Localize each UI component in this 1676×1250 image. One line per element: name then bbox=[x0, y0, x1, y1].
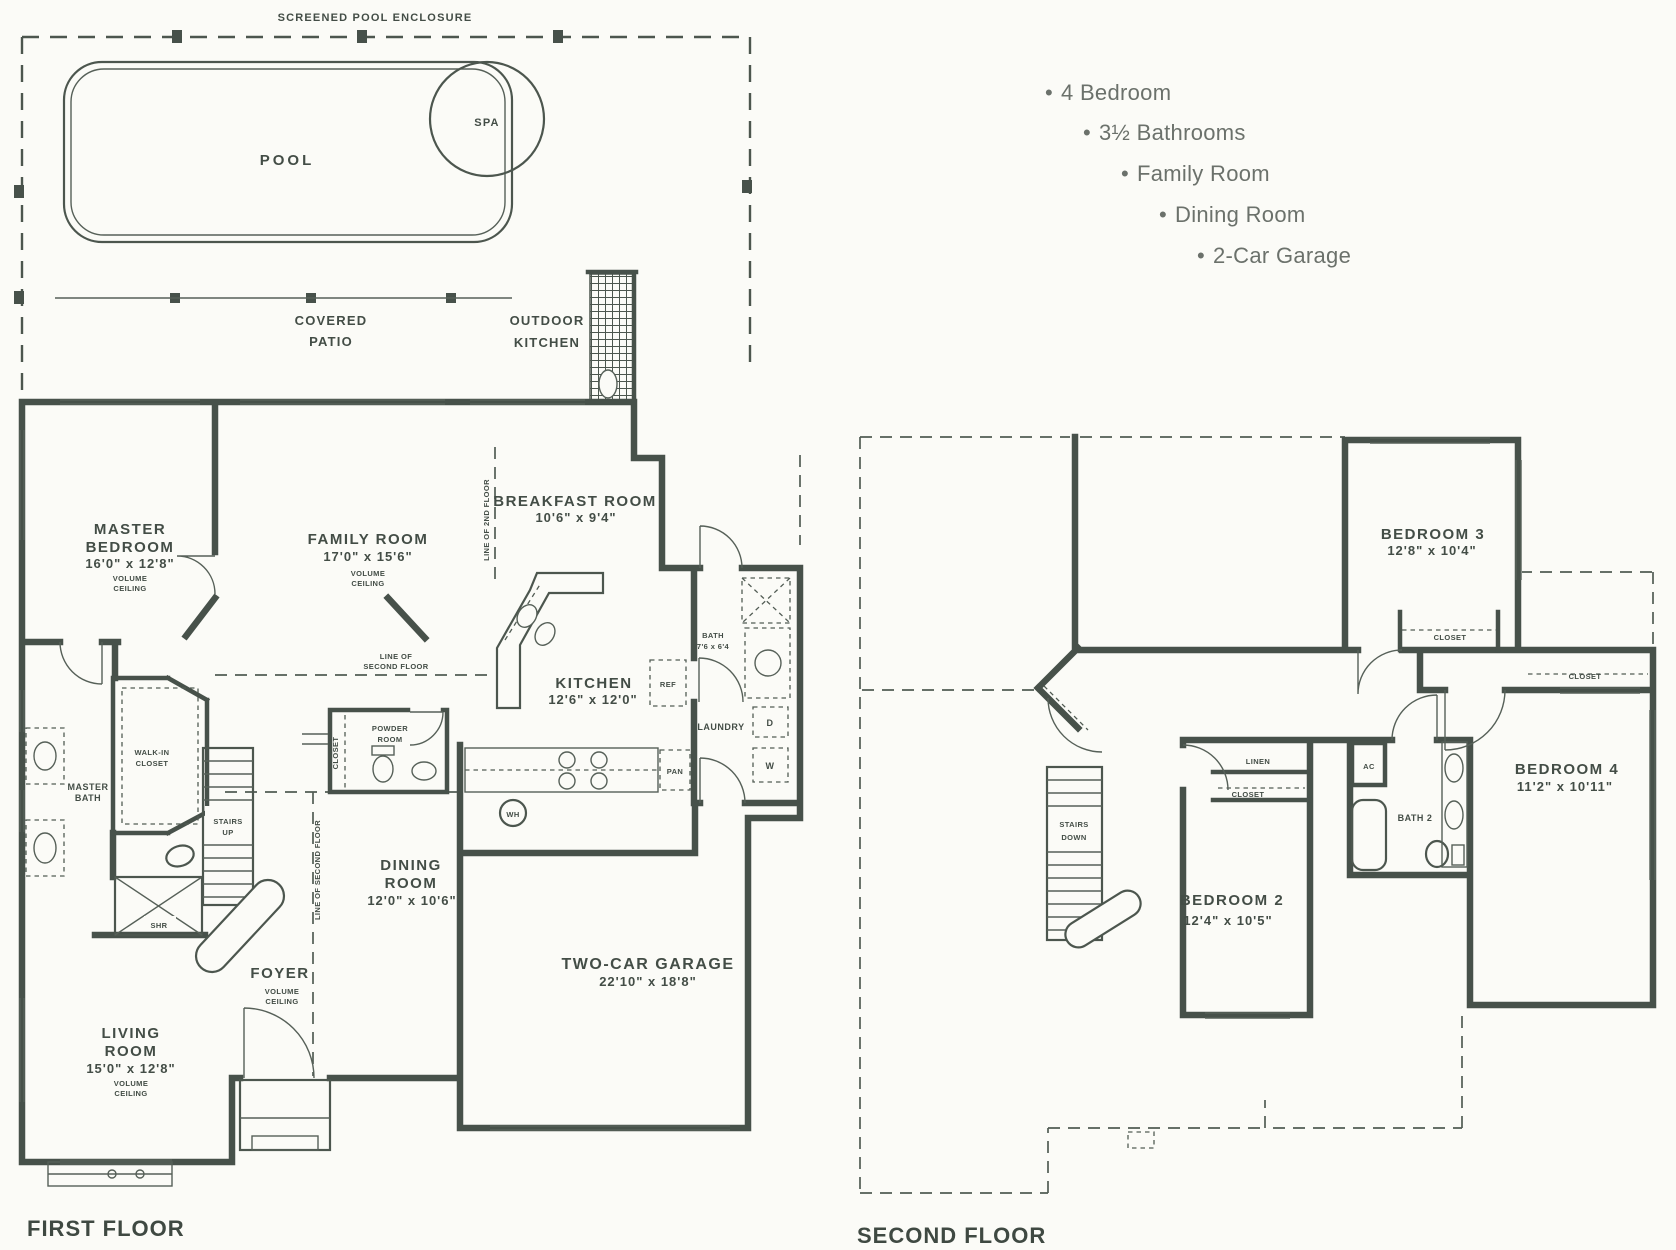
svg-text:CEILING: CEILING bbox=[114, 1089, 147, 1098]
svg-text:BATH: BATH bbox=[75, 793, 101, 803]
svg-text:MASTER: MASTER bbox=[68, 782, 109, 792]
pool-label: POOL bbox=[260, 152, 315, 169]
second-floor-plan bbox=[860, 437, 1656, 1193]
master-bath-fixtures bbox=[26, 642, 102, 876]
svg-text:ROOM: ROOM bbox=[385, 875, 438, 892]
second-floor-window-gaps bbox=[1203, 437, 1656, 1019]
svg-text:16'0" x 12'8": 16'0" x 12'8" bbox=[85, 556, 174, 571]
svg-text:BATH: BATH bbox=[702, 631, 724, 640]
garage-label: TWO-CAR GARAGE 22'10" x 18'8" bbox=[562, 956, 735, 989]
floorplan-page: SCREENED POOL ENCLOSURE POOL SPA COVERED… bbox=[0, 0, 1676, 1250]
shr-label: SHR bbox=[150, 921, 167, 930]
pan-label: PAN bbox=[667, 767, 683, 776]
front-entry bbox=[240, 1008, 330, 1150]
stair-banister bbox=[189, 873, 290, 978]
svg-text:12'0" x 10'6": 12'0" x 10'6" bbox=[367, 893, 456, 908]
covered-patio-label: COVERED PATIO bbox=[295, 313, 368, 349]
svg-text:DOWN: DOWN bbox=[1061, 833, 1086, 842]
feature-item: •Family Room bbox=[1121, 161, 1270, 186]
first-bath-fixtures bbox=[699, 578, 790, 702]
svg-text:BEDROOM 2: BEDROOM 2 bbox=[1180, 892, 1284, 909]
second-floor-walls bbox=[1038, 437, 1653, 1015]
svg-text:FAMILY ROOM: FAMILY ROOM bbox=[308, 531, 429, 548]
svg-text:CEILING: CEILING bbox=[265, 997, 298, 1006]
svg-text:SECOND FLOOR: SECOND FLOOR bbox=[363, 662, 428, 671]
laundry-label: LAUNDRY bbox=[697, 722, 744, 732]
svg-text:FOYER: FOYER bbox=[250, 965, 309, 982]
kitchen-label: KITCHEN 12'6" x 12'0" bbox=[548, 675, 637, 707]
svg-text:TWO-CAR GARAGE: TWO-CAR GARAGE bbox=[562, 956, 735, 973]
second-floor-doors bbox=[1183, 650, 1505, 790]
svg-text:LINE OF: LINE OF bbox=[380, 652, 412, 661]
svg-text:VOLUME: VOLUME bbox=[114, 1079, 148, 1088]
svg-text:VOLUME: VOLUME bbox=[113, 574, 147, 583]
svg-text:DINING: DINING bbox=[380, 857, 442, 874]
svg-text:11'2" x 10'11": 11'2" x 10'11" bbox=[1517, 779, 1613, 794]
feature-item: •Dining Room bbox=[1159, 202, 1305, 227]
svg-text:COVERED: COVERED bbox=[295, 313, 368, 328]
stairs-up bbox=[203, 748, 253, 905]
toilet bbox=[164, 842, 197, 870]
bedroom4-closet-label: CLOSET bbox=[1569, 672, 1602, 681]
second-floor-roof-dashes bbox=[860, 437, 1653, 1193]
svg-text:10'6" x 9'4": 10'6" x 9'4" bbox=[535, 510, 616, 525]
powder-closet-label: CLOSET bbox=[331, 737, 340, 770]
first-floor-title: FIRST FLOOR bbox=[27, 1216, 185, 1241]
bedroom2-closet-label: CLOSET bbox=[1232, 790, 1265, 799]
bedroom2-label: BEDROOM 2 12'4" x 10'5" bbox=[1180, 892, 1284, 928]
svg-text:UP: UP bbox=[222, 828, 233, 837]
powder-room-label: POWDER ROOM bbox=[372, 724, 408, 744]
svg-text:7'6 x 6'4: 7'6 x 6'4 bbox=[697, 642, 730, 651]
breakfast-room-label: BREAKFAST ROOM 10'6" x 9'4" bbox=[493, 493, 657, 525]
svg-text:KITCHEN: KITCHEN bbox=[555, 675, 632, 692]
svg-text:WALK-IN: WALK-IN bbox=[135, 748, 170, 757]
bath-label: BATH 7'6 x 6'4 bbox=[697, 631, 730, 651]
svg-text:15'0" x 12'8": 15'0" x 12'8" bbox=[86, 1061, 175, 1076]
feature-item: •4 Bedroom bbox=[1045, 80, 1171, 105]
floorplan-drawing: SCREENED POOL ENCLOSURE POOL SPA COVERED… bbox=[0, 0, 1676, 1250]
svg-text:BREAKFAST ROOM: BREAKFAST ROOM bbox=[493, 493, 657, 510]
living-room-label: LIVING ROOM 15'0" x 12'8" VOLUME CEILING bbox=[86, 1025, 175, 1098]
svg-text:VOLUME: VOLUME bbox=[265, 987, 299, 996]
svg-text:ROOM: ROOM bbox=[378, 735, 403, 744]
master-bedroom-door bbox=[177, 556, 215, 594]
svg-text:VOLUME: VOLUME bbox=[351, 569, 385, 578]
svg-text:12'8" x 10'4": 12'8" x 10'4" bbox=[1387, 543, 1476, 558]
family-room-label: FAMILY ROOM 17'0" x 15'6" VOLUME CEILING bbox=[308, 531, 429, 588]
line-of-2nd-floor-vertical-label: LINE OF 2ND FLOOR bbox=[482, 479, 491, 561]
svg-text:OUTDOOR: OUTDOOR bbox=[510, 313, 585, 328]
ac-label: AC bbox=[1363, 762, 1375, 771]
svg-text:STAIRS: STAIRS bbox=[1059, 820, 1088, 829]
svg-text:CEILING: CEILING bbox=[351, 579, 384, 588]
line-of-second-floor-label: LINE OF SECOND FLOOR bbox=[363, 652, 428, 671]
washer-label: W bbox=[766, 761, 775, 771]
svg-text:POWDER: POWDER bbox=[372, 724, 408, 733]
svg-text:12'4" x 10'5": 12'4" x 10'5" bbox=[1183, 913, 1272, 928]
svg-text:12'6" x 12'0": 12'6" x 12'0" bbox=[548, 692, 637, 707]
wh-label: WH bbox=[506, 810, 519, 819]
spa-label: SPA bbox=[474, 117, 499, 129]
line-of-second-floor-vertical-label: LINE OF SECOND FLOOR bbox=[313, 820, 322, 920]
svg-text:MASTER: MASTER bbox=[94, 521, 166, 538]
second-floor-windows bbox=[1205, 438, 1655, 1018]
svg-text:22'10" x 18'8": 22'10" x 18'8" bbox=[599, 974, 697, 989]
svg-text:CLOSET: CLOSET bbox=[136, 759, 169, 768]
dryer-label: D bbox=[767, 718, 774, 728]
feature-item: •3½ Bathrooms bbox=[1083, 120, 1246, 145]
svg-text:CEILING: CEILING bbox=[113, 584, 146, 593]
svg-text:ROOM: ROOM bbox=[105, 1043, 158, 1060]
svg-text:BEDROOM 4: BEDROOM 4 bbox=[1515, 761, 1619, 778]
roof-dash-detail bbox=[1128, 1132, 1154, 1148]
svg-text:LIVING: LIVING bbox=[101, 1025, 160, 1042]
svg-text:17'0" x 15'6": 17'0" x 15'6" bbox=[323, 549, 412, 564]
powder-room bbox=[302, 710, 447, 792]
ref-label: REF bbox=[660, 680, 676, 689]
svg-text:BEDROOM 3: BEDROOM 3 bbox=[1381, 526, 1485, 543]
features-list: •4 Bedroom •3½ Bathrooms •Family Room •D… bbox=[1045, 80, 1351, 268]
feature-item: •2-Car Garage bbox=[1197, 243, 1351, 268]
bedroom3-closet-label: CLOSET bbox=[1434, 633, 1467, 642]
outdoor-kitchen-label: OUTDOOR KITCHEN bbox=[510, 313, 585, 350]
svg-text:STAIRS: STAIRS bbox=[213, 817, 242, 826]
bedroom4-label: BEDROOM 4 11'2" x 10'11" bbox=[1515, 761, 1619, 794]
master-bath-label: MASTER BATH bbox=[68, 782, 109, 803]
dining-room-label: DINING ROOM 12'0" x 10'6" bbox=[367, 857, 456, 908]
svg-text:KITCHEN: KITCHEN bbox=[514, 335, 580, 350]
side-entry-door bbox=[700, 526, 742, 568]
foyer-label: FOYER VOLUME CEILING bbox=[250, 965, 309, 1006]
master-bedroom-label: MASTER BEDROOM 16'0" x 12'8" VOLUME CEIL… bbox=[85, 521, 174, 593]
walk-in-closet-label: WALK-IN CLOSET bbox=[135, 748, 170, 768]
svg-text:PATIO: PATIO bbox=[309, 334, 353, 349]
pool-enclosure-label: SCREENED POOL ENCLOSURE bbox=[278, 12, 473, 24]
outdoor-kitchen-block bbox=[588, 272, 636, 404]
second-floor-title: SECOND FLOOR bbox=[857, 1223, 1046, 1248]
first-floor-plan bbox=[14, 30, 800, 1186]
bedroom3-label: BEDROOM 3 12'8" x 10'4" bbox=[1381, 526, 1485, 558]
svg-text:BEDROOM: BEDROOM bbox=[86, 539, 175, 556]
linen-label: LINEN bbox=[1246, 757, 1271, 766]
bath2-label: BATH 2 bbox=[1398, 813, 1433, 823]
